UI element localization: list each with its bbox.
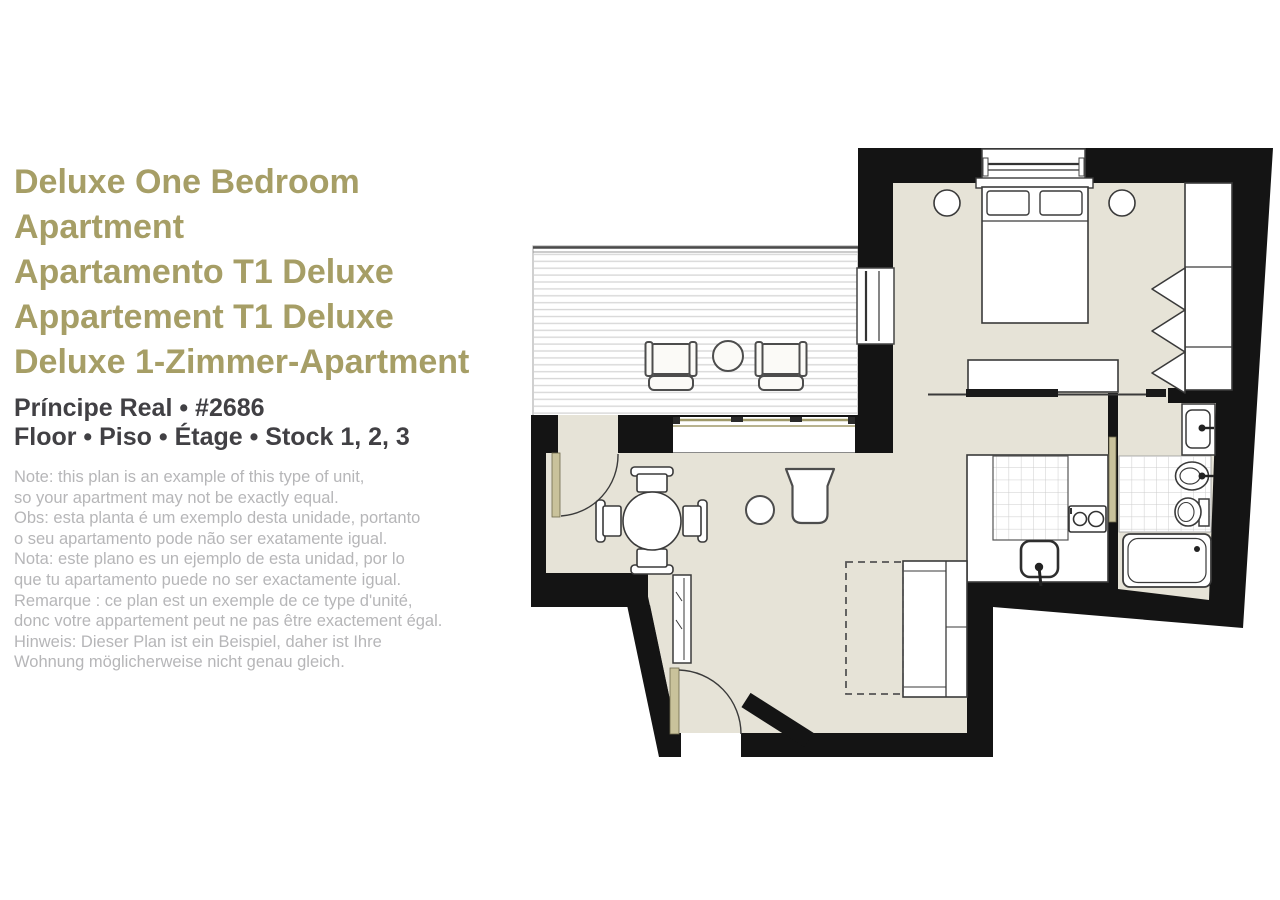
side-table	[746, 496, 774, 524]
living-room-window	[673, 417, 855, 453]
bedside-table-left	[934, 190, 960, 216]
tub-armchair	[786, 469, 834, 523]
dresser	[968, 360, 1118, 392]
double-bed-icon	[976, 178, 1093, 323]
entry-mirror	[673, 575, 691, 663]
toilet-icon	[1175, 498, 1209, 526]
bedside-table-right	[1109, 190, 1135, 216]
sofa-icon	[903, 561, 967, 697]
cooktop-icon	[1069, 506, 1106, 532]
floor-plan-svg	[0, 0, 1280, 900]
terrace	[533, 246, 858, 417]
pillow-right	[1040, 191, 1082, 215]
washbasin-icon	[1182, 404, 1215, 455]
terrace-decking	[534, 253, 857, 415]
bedroom-window-side	[857, 268, 894, 344]
terrace-armchair-left	[646, 342, 697, 390]
terrace-armchair-right	[756, 342, 807, 390]
kitchen-tiled-floor	[993, 456, 1068, 540]
corridor-floor	[893, 393, 1108, 455]
pillow-left	[987, 191, 1029, 215]
bedroom-window-top	[982, 149, 1085, 182]
floor-plan-page: Deluxe One Bedroom Apartment Apartamento…	[0, 0, 1280, 900]
dining-table	[623, 492, 681, 550]
bathroom-door	[1109, 437, 1116, 522]
terrace-door-opening	[558, 415, 618, 453]
bathtub-icon	[1123, 534, 1211, 587]
terrace-coffee-table	[713, 341, 743, 371]
kitchen	[967, 455, 1108, 586]
